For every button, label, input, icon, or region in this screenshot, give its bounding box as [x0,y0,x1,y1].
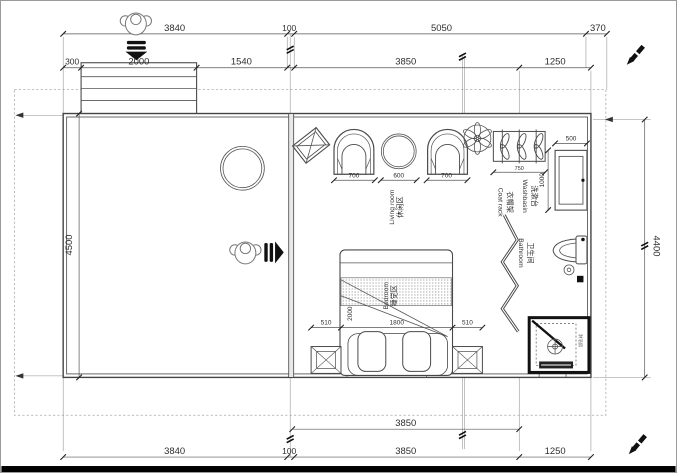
dim-label: 3850 [395,418,416,429]
screenshot-frame: 淋浴房 3840 100 5050 370 300 2000 1540 3850… [0,0,677,473]
dim-label: 1250 [545,57,566,68]
nightstand-right [453,347,483,374]
dim-label: 2000 [347,306,354,321]
pillow-left [358,332,386,372]
nightstand-left [311,347,341,374]
person-icon [120,13,151,35]
dim-label: 510 [462,320,473,327]
coat-rack-label-en: Coat rack [496,188,503,218]
stairs [81,63,197,114]
dim-label: 510 [321,320,332,327]
dim-label-left: 4500 [64,234,75,255]
dim-label: 3850 [395,57,416,68]
bathroom-label-zh: 卫生间 [526,242,535,263]
dim-label: 500 [566,135,577,142]
dim-label: 300 [65,57,79,67]
armchair-left [334,129,374,174]
dim-label: 1800 [390,320,405,327]
bottom-bar [1,466,675,472]
bathroom-label-en: Bathroom [517,238,524,268]
dim-label: 5050 [431,23,452,34]
bed [340,250,453,375]
dim-label: 100 [282,446,296,456]
washbasin-label-en: Washbasin [521,180,528,213]
dim-label: 1250 [545,446,566,457]
dim-label: 2000 [128,57,149,68]
washbasin-label-zh: 洗漱台 [530,185,539,206]
coat-rack-label-zh: 衣帽架 [505,191,514,212]
dim-label: 700 [441,172,452,179]
dim-label: 700 [349,172,360,179]
partition-wall [289,114,294,378]
coat-rack [493,129,545,163]
shower-label: 淋浴房 [577,334,584,348]
dim-label: 3840 [164,446,185,457]
bedroom-label-zh: 睡觉区 [390,285,399,306]
pen-icon [629,436,645,454]
dim-label: 1540 [231,57,252,68]
dim-label-right: 4400 [651,235,662,256]
dim-label: 3840 [164,23,185,34]
shower-cabin: 淋浴房 [529,318,589,373]
dim-label: 750 [515,166,524,172]
dim-label: 3850 [395,446,416,457]
dim-label: 100 [282,23,296,33]
pen-icon [627,46,643,64]
bedroom-label-en: Bedroom [383,282,390,310]
dim-label: 1000 [539,173,546,188]
washbasin [555,150,587,210]
dim-label: 370 [590,23,606,34]
living-room-label-en: Living room [389,189,396,224]
pillow-right [403,332,431,372]
living-room-label-zh: 休闲区 [396,196,405,217]
dim-label: 600 [393,172,404,179]
armchair-right [428,129,468,174]
floor-plan-canvas: 淋浴房 3840 100 5050 370 300 2000 1540 3850… [1,1,676,472]
